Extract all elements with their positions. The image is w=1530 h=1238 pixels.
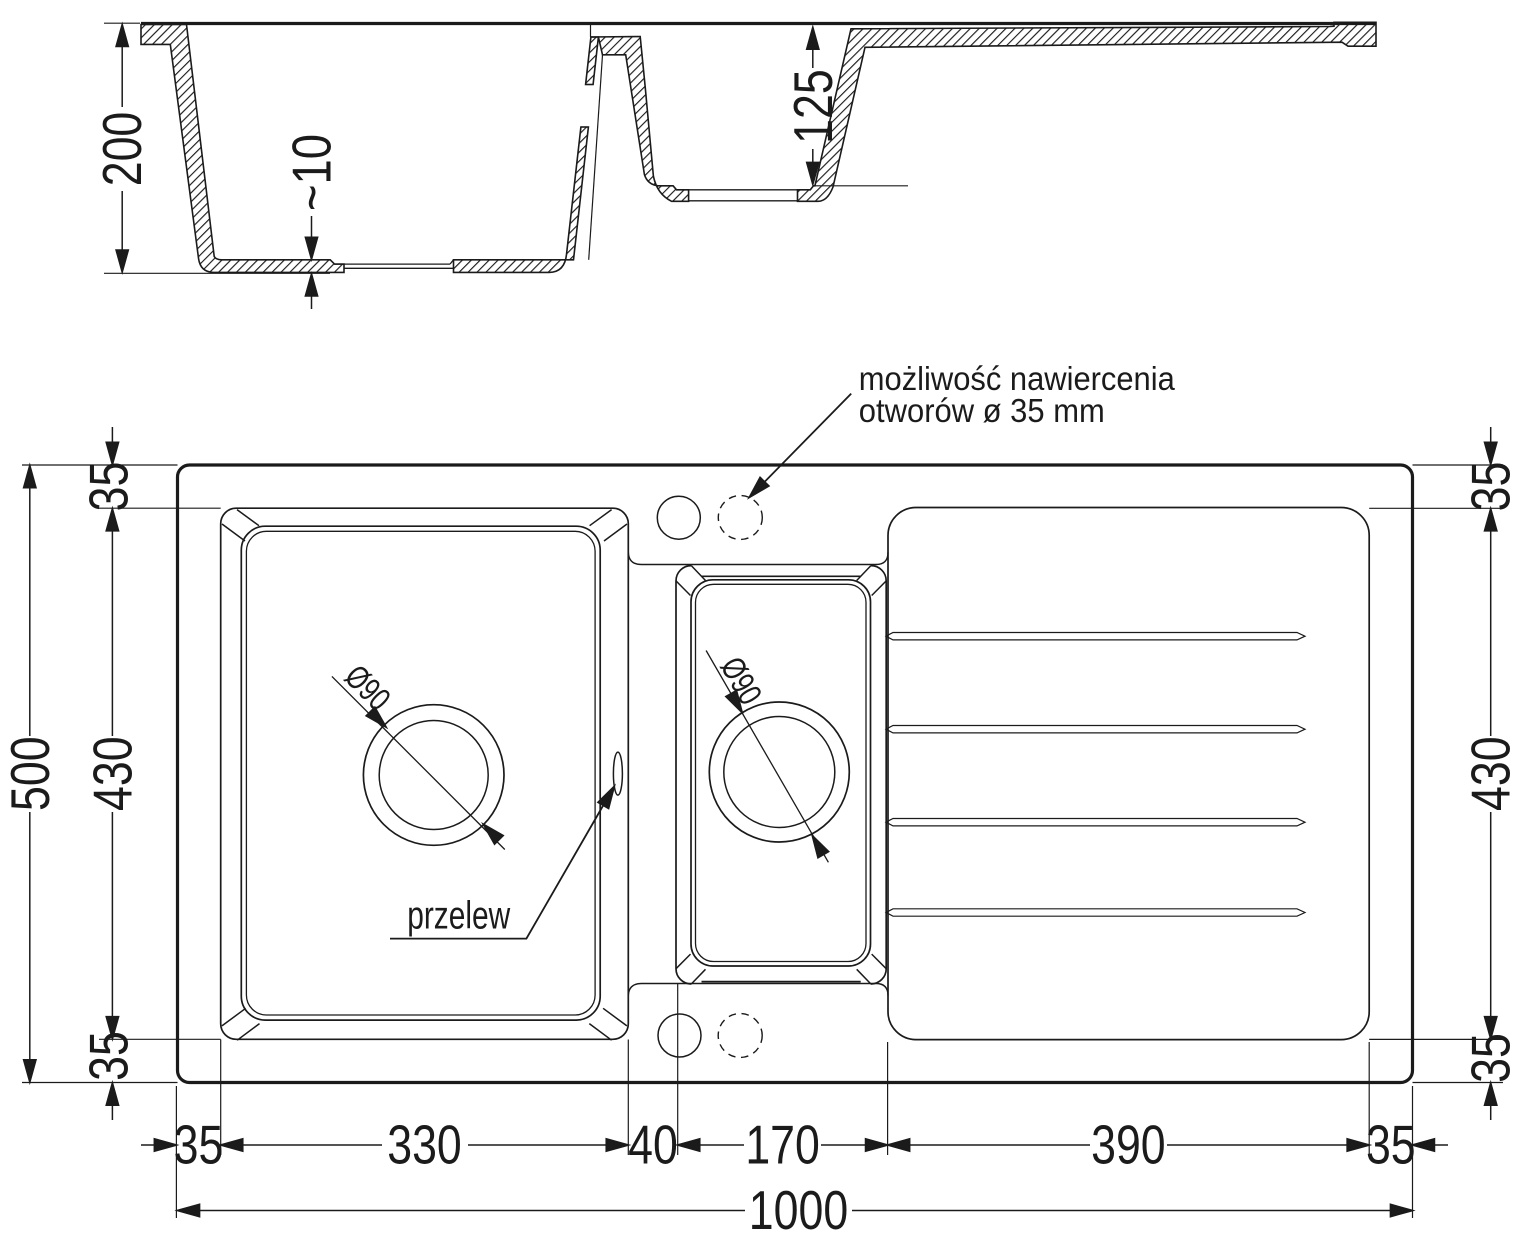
svg-text:35: 35 xyxy=(174,1114,224,1176)
svg-text:35: 35 xyxy=(1366,1114,1416,1176)
svg-text:125: 125 xyxy=(782,69,844,144)
svg-text:1000: 1000 xyxy=(749,1179,848,1238)
svg-text:35: 35 xyxy=(78,462,140,512)
svg-text:330: 330 xyxy=(387,1114,462,1176)
svg-text:otworów ø 35 mm: otworów ø 35 mm xyxy=(859,392,1105,429)
svg-text:35: 35 xyxy=(78,1031,140,1081)
svg-text:35: 35 xyxy=(1460,462,1522,512)
svg-text:200: 200 xyxy=(91,112,153,187)
svg-text:35: 35 xyxy=(1460,1033,1522,1083)
svg-text:170: 170 xyxy=(745,1114,820,1176)
svg-text:390: 390 xyxy=(1091,1114,1166,1176)
svg-text:40: 40 xyxy=(628,1114,678,1176)
svg-text:~10: ~10 xyxy=(281,134,343,211)
svg-text:przelew: przelew xyxy=(407,894,511,937)
svg-text:430: 430 xyxy=(81,736,143,811)
svg-text:500: 500 xyxy=(0,736,61,811)
svg-text:430: 430 xyxy=(1460,736,1522,811)
